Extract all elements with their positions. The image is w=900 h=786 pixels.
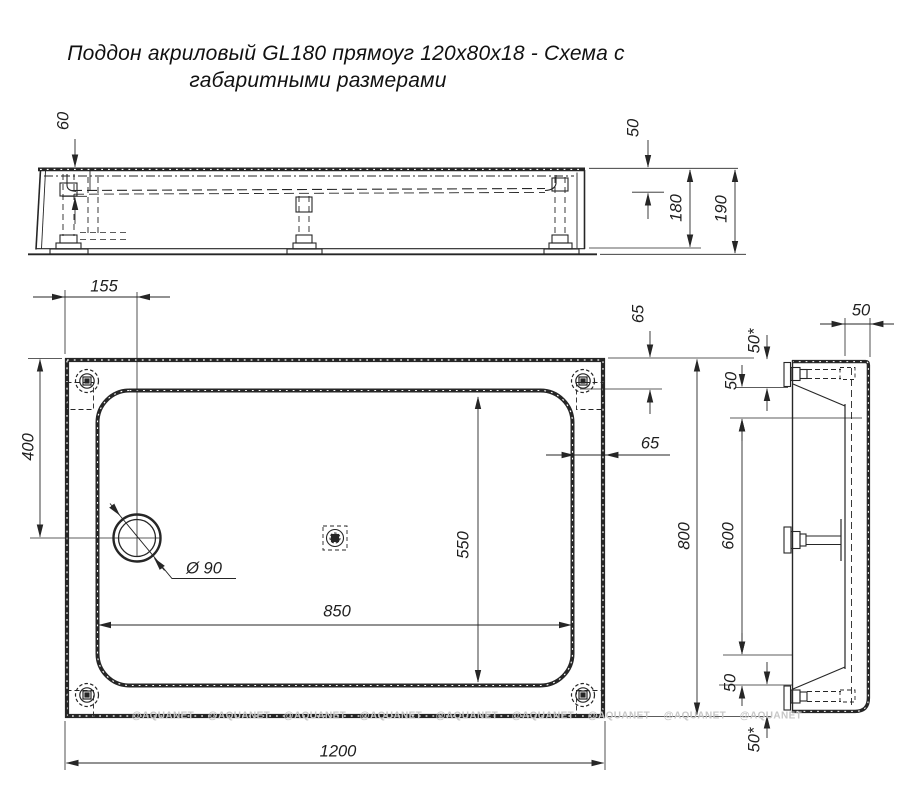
side-foot-top — [784, 363, 855, 387]
dim-top-foot: 50 — [723, 372, 742, 390]
plan-view — [28, 290, 772, 770]
dim-drain-offset-top: 400 — [20, 433, 39, 461]
watermark: @AQUANET — [132, 711, 194, 722]
dim-foot-spacing: 600 — [720, 522, 739, 550]
watermark: @AQUANET — [208, 711, 270, 722]
dim-body-height: 180 — [668, 194, 687, 222]
dim-total-width: 800 — [676, 522, 695, 550]
watermark: @AQUANET — [512, 711, 574, 722]
dim-rim-height: 50 — [625, 119, 644, 137]
dim-total-length: 1200 — [320, 743, 357, 762]
side-foot-bottom — [784, 686, 855, 710]
dim-ledge-top: 65 — [630, 305, 649, 323]
dim-bottom-foot: 50 — [722, 674, 741, 692]
side-view — [719, 318, 894, 738]
dim-basin-length: 850 — [323, 603, 351, 622]
drawing-title-line2: габаритными размерами — [189, 69, 446, 93]
dim-drain-offset-left: 155 — [90, 278, 118, 297]
dim-total-height: 190 — [713, 195, 732, 223]
center-foot — [323, 526, 347, 550]
technical-drawing-page: Поддон акриловый GL180 прямоуг 120х80х18… — [0, 0, 900, 786]
watermark: @AQUANET — [740, 711, 802, 722]
dim-basin-depth: 60 — [55, 112, 74, 130]
dim-bottom-edge: 50* — [746, 728, 765, 753]
dim-top-edge: 50* — [746, 329, 765, 354]
corner-foot-bottom-left — [67, 684, 99, 718]
dim-basin-width: 550 — [455, 531, 474, 559]
drawing-title-line1: Поддон акриловый GL180 прямоуг 120х80х18… — [67, 42, 624, 66]
corner-foot-top-left — [67, 370, 99, 410]
front-view — [28, 139, 746, 254]
dim-ledge-right: 65 — [641, 435, 659, 454]
watermark: @AQUANET — [588, 711, 650, 722]
dim-drain-diameter: Ø 90 — [186, 560, 222, 579]
watermark: @AQUANET — [284, 711, 346, 722]
watermark: @AQUANET — [360, 711, 422, 722]
watermark: @AQUANET — [664, 711, 726, 722]
dim-rim-width: 50 — [852, 302, 870, 321]
drawing-linework — [0, 0, 900, 786]
watermark: @AQUANET — [436, 711, 498, 722]
corner-foot-top-right — [572, 370, 604, 410]
